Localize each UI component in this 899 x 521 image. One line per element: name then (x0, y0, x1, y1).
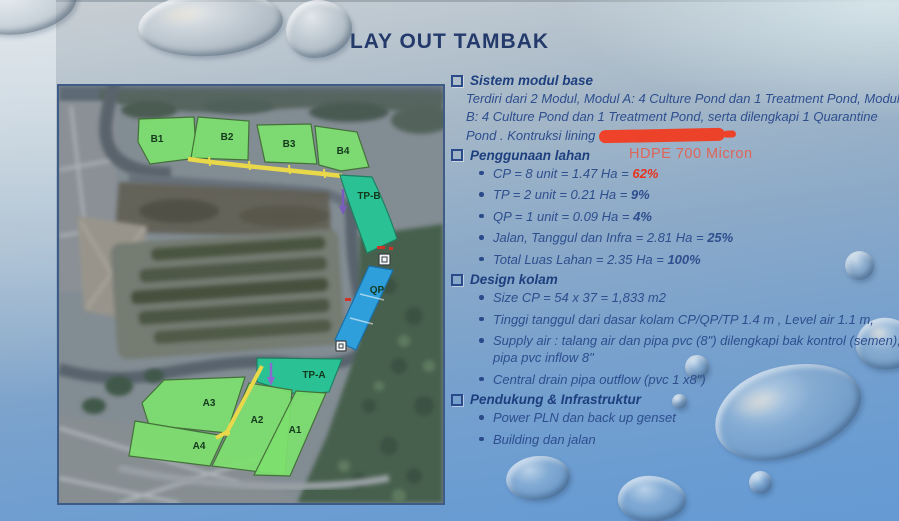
section-heading-sistem-modul-base: Sistem modul base (451, 73, 899, 88)
list-item: Building dan jalan (479, 431, 899, 448)
pond-label-tpb: TP-B (357, 191, 380, 202)
background-left-band (0, 0, 56, 400)
bullet-dot-icon (479, 214, 484, 219)
pond-label-b3: B3 (283, 139, 296, 150)
list-item: QP = 1 unit = 0.09 Ha = 4% (479, 208, 899, 225)
water-drop-decoration (749, 471, 772, 494)
water-drop-decoration (504, 453, 572, 503)
list-item: TP = 2 unit = 0.21 Ha = 9% (479, 186, 899, 203)
bullet-dot-icon (479, 377, 484, 382)
pond-layout-map: B1 B2 B3 B4 TP-B QP TP-A A3 A2 A1 A4 (57, 84, 445, 505)
pond-label-qp: QP (370, 285, 385, 296)
pond-label-b1: B1 (151, 134, 164, 145)
info-panel: Sistem modul base Terdiri dari 2 Modul, … (451, 70, 899, 452)
list-item: Size CP = 54 x 37 = 1,833 m2 (479, 289, 899, 306)
infrastructure-list: Power PLN dan back up genset Building da… (451, 409, 899, 448)
bullet-dot-icon (479, 437, 484, 442)
list-item: CP = 8 unit = 1.47 Ha = 62% (479, 165, 899, 182)
section-heading-label: Design kolam (470, 272, 558, 287)
checkbox-bullet-icon (451, 274, 463, 286)
pond-label-a3: A3 (203, 398, 216, 409)
section-heading-label: Sistem modul base (470, 73, 593, 88)
bullet-dot-icon (479, 338, 484, 343)
pond-layout-illustration: B1 B2 B3 B4 TP-B QP TP-A A3 A2 A1 A4 (59, 86, 443, 503)
land-use-list: CP = 8 unit = 1.47 Ha = 62% TP = 2 unit … (451, 165, 899, 268)
bullet-dot-icon (479, 192, 484, 197)
pond-label-a4: A4 (193, 441, 206, 452)
bullet-dot-icon (479, 257, 484, 262)
pond-label-a2: A2 (251, 415, 264, 426)
page-title: LAY OUT TAMBAK (0, 30, 899, 54)
bullet-dot-icon (479, 415, 484, 420)
checkbox-bullet-icon (451, 394, 463, 406)
module-description: Terdiri dari 2 Modul, Modul A: 4 Culture… (466, 90, 899, 145)
annotation-hdpe: HDPE 700 Micron (629, 146, 753, 162)
redaction-bar (599, 127, 725, 143)
water-drop-decoration (616, 473, 688, 521)
pond-label-b2: B2 (221, 132, 234, 143)
section-heading-label: Pendukung & Infrastruktur (470, 392, 641, 407)
list-item: Supply air : talang air dan pipa pvc (8"… (479, 332, 899, 366)
bullet-dot-icon (479, 171, 484, 176)
list-item: Central drain pipa outflow (pvc 1 x8") (479, 371, 899, 388)
pond-label-tpa: TP-A (302, 370, 325, 381)
pond-label-a1: A1 (289, 425, 302, 436)
checkbox-bullet-icon (451, 75, 463, 87)
highlight-percentage: 62% (632, 166, 658, 181)
list-item: Tinggi tanggul dari dasar kolam CP/QP/TP… (479, 311, 899, 328)
bullet-dot-icon (479, 295, 484, 300)
pond-label-b4: B4 (337, 146, 350, 157)
slide: LAY OUT TAMBAK (0, 0, 899, 521)
design-list: Size CP = 54 x 37 = 1,833 m2 Tinggi tang… (451, 289, 899, 388)
section-heading-design-kolam: Design kolam (451, 272, 899, 287)
checkbox-bullet-icon (451, 149, 463, 161)
list-item: Total Luas Lahan = 2.35 Ha = 100% (479, 251, 899, 268)
section-heading-label: Penggunaan lahan (470, 148, 590, 163)
list-item: Jalan, Tanggul dan Infra = 2.81 Ha = 25% (479, 229, 899, 246)
section-heading-pendukung-infrastruktur: Pendukung & Infrastruktur (451, 392, 899, 407)
bullet-dot-icon (479, 317, 484, 322)
list-item: Power PLN dan back up genset (479, 409, 899, 426)
bullet-dot-icon (479, 235, 484, 240)
